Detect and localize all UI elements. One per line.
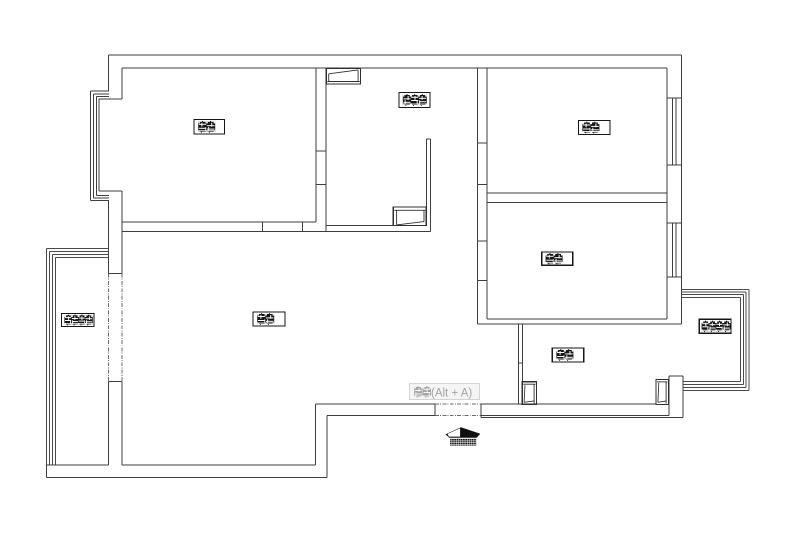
svg-text:(Alt + A): (Alt + A) <box>431 387 472 399</box>
